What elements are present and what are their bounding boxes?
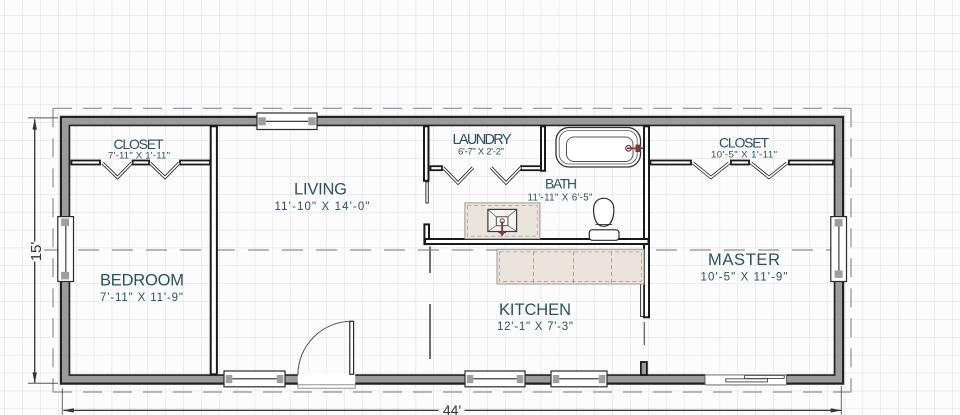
svg-text:6'-7" X 2'-2": 6'-7" X 2'-2": [458, 147, 504, 158]
svg-text:BATH: BATH: [545, 177, 577, 192]
svg-text:12'-1" X 7'-3": 12'-1" X 7'-3": [497, 321, 573, 333]
svg-text:LIVING: LIVING: [294, 181, 347, 199]
svg-text:11'-10" X 14'-0": 11'-10" X 14'-0": [275, 201, 370, 213]
svg-text:11'-11" X 6'-5": 11'-11" X 6'-5": [528, 192, 594, 203]
svg-text:CLOSET: CLOSET: [719, 135, 769, 151]
svg-text:44': 44': [443, 402, 461, 415]
svg-text:LAUNDRY: LAUNDRY: [453, 132, 512, 148]
svg-text:7'-11" X 11'-9": 7'-11" X 11'-9": [100, 292, 183, 304]
svg-text:10'-5" X 11'-9": 10'-5" X 11'-9": [701, 271, 788, 283]
svg-text:MASTER: MASTER: [708, 251, 780, 269]
svg-text:15': 15': [28, 242, 45, 262]
svg-text:KITCHEN: KITCHEN: [499, 301, 571, 319]
svg-text:7'-11" X 1'-11": 7'-11" X 1'-11": [108, 151, 170, 162]
svg-text:10'-5" X 1'-11": 10'-5" X 1'-11": [711, 150, 777, 161]
svg-text:BEDROOM: BEDROOM: [100, 272, 184, 290]
